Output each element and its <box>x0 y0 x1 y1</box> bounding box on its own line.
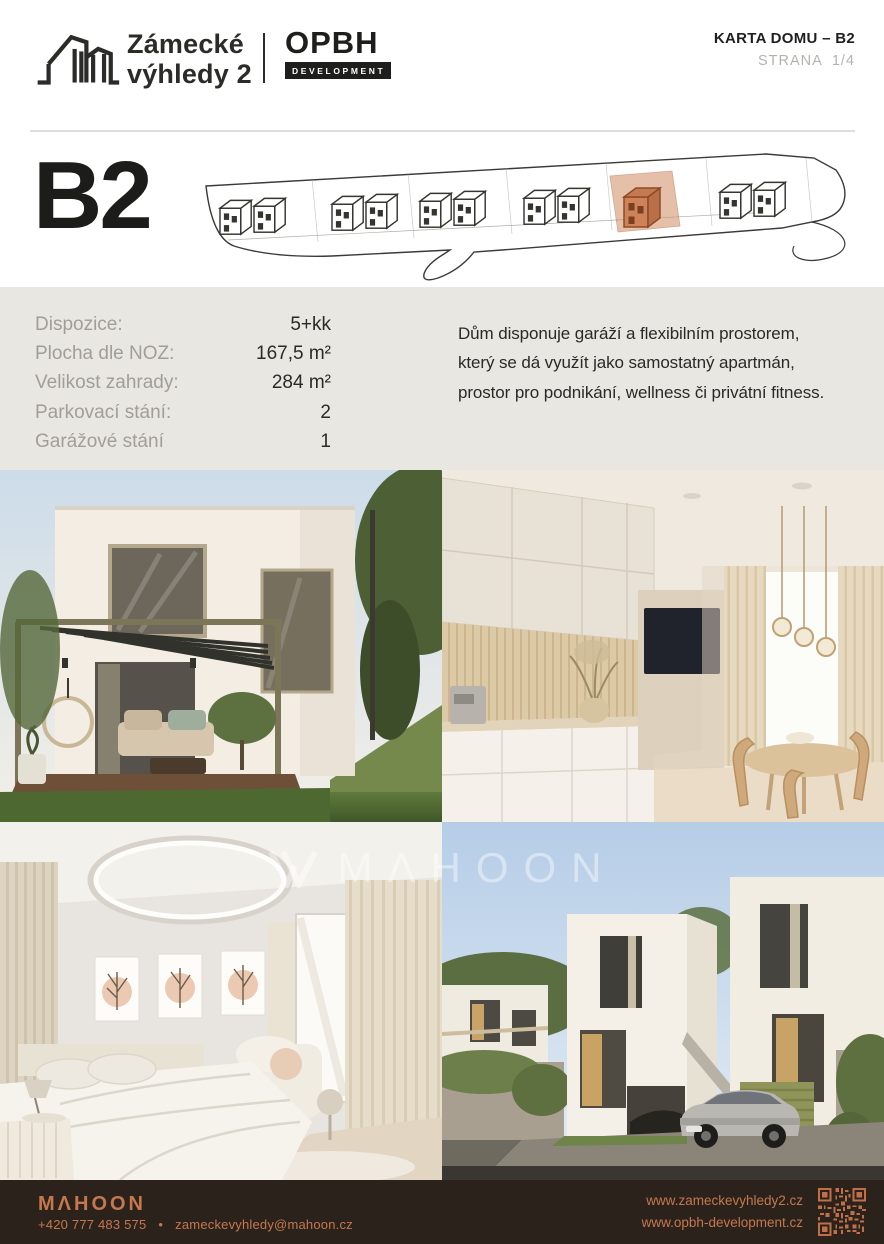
mahoon-logo: MΛHOON <box>38 1193 353 1215</box>
footer-contact: +420 777 483 575•zameckevyhledy@mahoon.c… <box>38 1217 353 1232</box>
photo-bedroom <box>0 822 442 1180</box>
page-number: 1/4 <box>832 53 855 69</box>
detail-row-plocha: Plocha dle NOZ: 167,5 m² <box>35 339 331 368</box>
page-label: STRANA <box>758 53 823 69</box>
photo-street-houses <box>442 822 884 1180</box>
photo-exterior-pergola <box>0 470 442 822</box>
photo-kitchen-dining <box>442 470 884 822</box>
detail-label: Garážové stání <box>35 427 164 456</box>
detail-label: Dispozice: <box>35 310 123 339</box>
brand-name: Zámecké výhledy 2 <box>127 29 252 89</box>
opbh-logo-sub: DEVELOPMENT <box>285 62 391 79</box>
qr-code <box>818 1188 866 1236</box>
opbh-logo: OPBH DEVELOPMENT <box>285 26 391 79</box>
house-description: Dům disponuje garáží a flexibilním prost… <box>458 319 824 407</box>
footer-links: www.zameckevyhledy2.cz www.opbh-developm… <box>642 1190 803 1234</box>
detail-row-parkovani: Parkovací stání: 2 <box>35 398 331 427</box>
header-rule <box>30 130 855 132</box>
footer-separator: • <box>158 1217 163 1232</box>
page-indicator: STRANA1/4 <box>758 53 855 69</box>
detail-value: 2 <box>320 398 331 427</box>
info-band: Dispozice: 5+kk Plocha dle NOZ: 167,5 m²… <box>0 287 884 470</box>
detail-value: 5+kk <box>290 310 331 339</box>
highlighted-house-b2 <box>610 171 680 232</box>
photo-grid <box>0 470 884 1180</box>
footer-email-link[interactable]: zameckevyhledy@mahoon.cz <box>175 1217 353 1232</box>
detail-label: Plocha dle NOZ: <box>35 339 174 368</box>
details-table: Dispozice: 5+kk Plocha dle NOZ: 167,5 m²… <box>35 310 331 456</box>
footer-website2-link[interactable]: www.opbh-development.cz <box>642 1212 803 1234</box>
header: Zámecké výhledy 2 OPBH DEVELOPMENT KARTA… <box>0 0 884 132</box>
detail-value: 1 <box>320 427 331 456</box>
house-id-headline: B2 <box>33 146 150 246</box>
opbh-logo-name: OPBH <box>285 26 391 60</box>
header-divider <box>263 33 265 83</box>
footer-website1-link[interactable]: www.zameckevyhledy2.cz <box>642 1190 803 1212</box>
detail-value: 167,5 m² <box>256 339 331 368</box>
detail-row-garaz: Garážové stání 1 <box>35 427 331 456</box>
footer: MΛHOON +420 777 483 575•zameckevyhledy@m… <box>0 1180 884 1244</box>
detail-label: Parkovací stání: <box>35 398 171 427</box>
site-plan-drawing <box>172 150 864 288</box>
detail-row-dispozice: Dispozice: 5+kk <box>35 310 331 339</box>
footer-left: MΛHOON +420 777 483 575•zameckevyhledy@m… <box>38 1193 353 1232</box>
footer-phone: +420 777 483 575 <box>38 1217 146 1232</box>
house-card-page: Zámecké výhledy 2 OPBH DEVELOPMENT KARTA… <box>0 0 884 1244</box>
detail-label: Velikost zahrady: <box>35 368 179 397</box>
doc-title: KARTA DOMU – B2 <box>714 30 855 47</box>
detail-row-zahrada: Velikost zahrady: 284 m² <box>35 368 331 397</box>
detail-value: 284 m² <box>272 368 331 397</box>
zamecke-vyhledy-logo-icon <box>36 27 120 91</box>
